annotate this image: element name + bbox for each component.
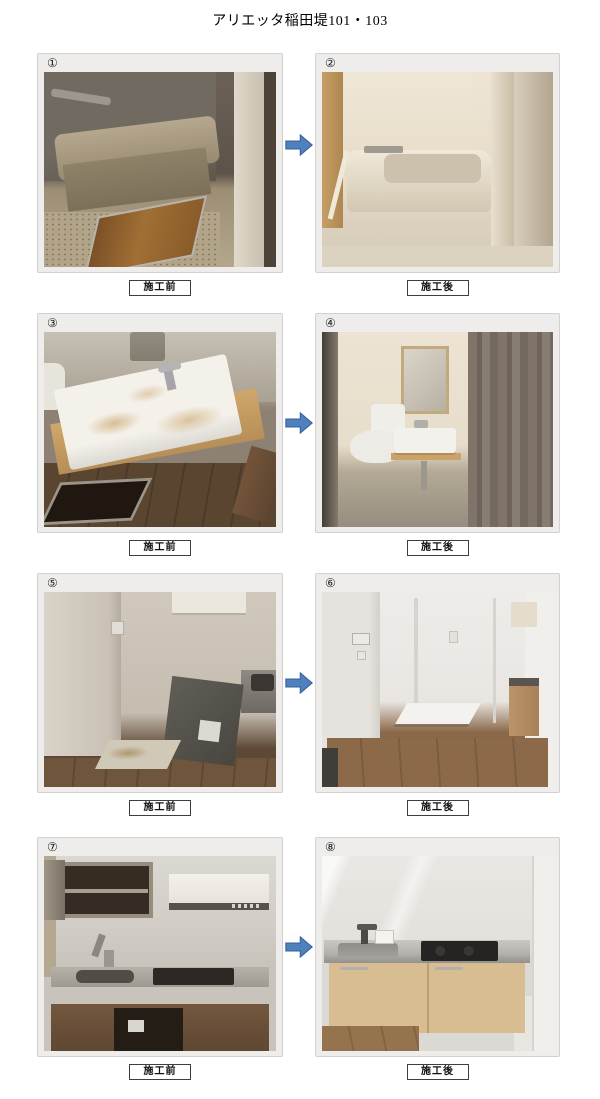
photo-washroom-after	[322, 332, 553, 527]
faucet	[364, 146, 403, 153]
counter	[509, 678, 539, 686]
wood-floor	[327, 738, 549, 787]
photo-panel-after-2: ④	[315, 313, 560, 533]
caption-box-before: 施工前	[129, 280, 191, 296]
door-handle	[340, 967, 368, 970]
door-seam	[427, 963, 429, 1033]
right-wall	[532, 856, 553, 1051]
photo-number: ⑤	[44, 575, 276, 592]
photo-number: ⑧	[322, 839, 553, 856]
arrow-column	[283, 53, 315, 273]
photo-number: ⑥	[322, 575, 553, 592]
photo-number: ②	[322, 55, 553, 72]
photo-panel-after-1: ②	[315, 53, 560, 273]
switch	[357, 651, 366, 661]
product-sticker	[375, 930, 393, 944]
caption-box-before: 施工前	[129, 1064, 191, 1080]
before-column: ⑤ 施工前	[37, 573, 283, 816]
gas-stove	[153, 968, 234, 985]
sink	[76, 970, 134, 983]
faucet	[414, 420, 428, 428]
arrow-column	[283, 573, 315, 793]
photo-panel-before-3: ⑤	[37, 573, 283, 793]
hood-buttons	[232, 904, 262, 908]
panel-edge	[491, 72, 514, 255]
cabinet-shelf	[60, 889, 148, 893]
photo-laundry-after	[322, 592, 553, 787]
dirty-laundry-pan	[95, 740, 181, 769]
photo-bathtub-after	[322, 72, 553, 267]
door-handle	[435, 967, 463, 970]
photo-panel-before-2: ③	[37, 313, 283, 533]
mirror	[401, 346, 450, 414]
photo-kitchen-after	[322, 856, 553, 1051]
sink	[338, 943, 398, 959]
after-column: ② 施工後	[315, 53, 560, 296]
photo-number: ①	[44, 55, 276, 72]
faucet	[104, 950, 113, 968]
side-wall	[514, 72, 553, 267]
dark-edge	[322, 748, 338, 787]
before-after-arrow	[285, 133, 313, 157]
switch-plate	[198, 719, 221, 741]
left-wall	[322, 592, 380, 748]
photo-laundry-before	[44, 592, 276, 787]
sink	[251, 674, 274, 692]
photo-panel-after-3: ⑥	[315, 573, 560, 793]
comparison-row-3: ⑤ 施工前 ⑥	[37, 573, 560, 816]
before-after-arrow	[285, 935, 313, 959]
photo-washbasin-before	[44, 332, 276, 527]
photo-panel-before-1: ①	[37, 53, 283, 273]
wood-bracket	[391, 453, 460, 460]
photo-number: ③	[44, 315, 276, 332]
comparison-row-2: ③ 施工前 ④	[37, 313, 560, 556]
thermostat	[352, 633, 370, 645]
upper-cabinet	[511, 602, 536, 627]
outlet	[111, 621, 124, 635]
wood-door	[468, 332, 553, 527]
before-column: ① 施工前	[37, 53, 283, 296]
photo-panel-after-4: ⑧	[315, 837, 560, 1057]
caption-box-before: 施工前	[129, 800, 191, 816]
gas-stove	[421, 941, 497, 961]
before-after-arrow	[285, 411, 313, 435]
stand-leg	[421, 461, 427, 490]
caption-box-after: 施工後	[407, 1064, 469, 1080]
before-column: ③ 施工前	[37, 313, 283, 556]
door-frame	[234, 72, 264, 267]
before-after-arrow	[285, 671, 313, 695]
photo-bathtub-before	[44, 72, 276, 267]
waste-bin	[130, 332, 165, 361]
photo-number: ⑦	[44, 839, 276, 856]
caption-box-before: 施工前	[129, 540, 191, 556]
dark-edge	[264, 72, 276, 267]
wood-floor	[322, 1026, 419, 1051]
arrow-column	[283, 313, 315, 533]
comparison-row-4: ⑦ 施工前	[37, 837, 560, 1080]
caption-box-after: 施工後	[407, 800, 469, 816]
after-column: ⑥ 施工後	[315, 573, 560, 816]
left-wall	[44, 592, 121, 756]
after-column: ④ 施工後	[315, 313, 560, 556]
recess-edge	[493, 598, 496, 723]
open-lower-cabinet	[114, 1008, 184, 1051]
before-column: ⑦ 施工前	[37, 837, 283, 1080]
wood-cabinet	[509, 686, 539, 737]
wash-basin	[394, 428, 456, 453]
left-edge	[322, 332, 338, 527]
overhead-cabinet	[172, 592, 246, 615]
photo-panel-before-4: ⑦	[37, 837, 283, 1057]
after-column: ⑧ 施工後	[315, 837, 560, 1080]
photo-kitchen-before	[44, 856, 276, 1051]
photo-number: ④	[322, 315, 553, 332]
comparison-row-1: ① 施工前 ②	[37, 53, 560, 296]
sticker	[128, 1020, 144, 1032]
bathtub-inner	[384, 154, 481, 183]
arrow-column	[283, 837, 315, 1057]
open-cabinet-door	[44, 860, 65, 920]
outlet	[449, 631, 458, 643]
caption-box-after: 施工後	[407, 540, 469, 556]
caption-box-after: 施工後	[407, 280, 469, 296]
range-hood	[169, 874, 269, 903]
floor	[322, 246, 553, 267]
laundry-pan	[394, 703, 480, 724]
page-title: アリエッタ稲田堤101・103	[0, 0, 600, 53]
